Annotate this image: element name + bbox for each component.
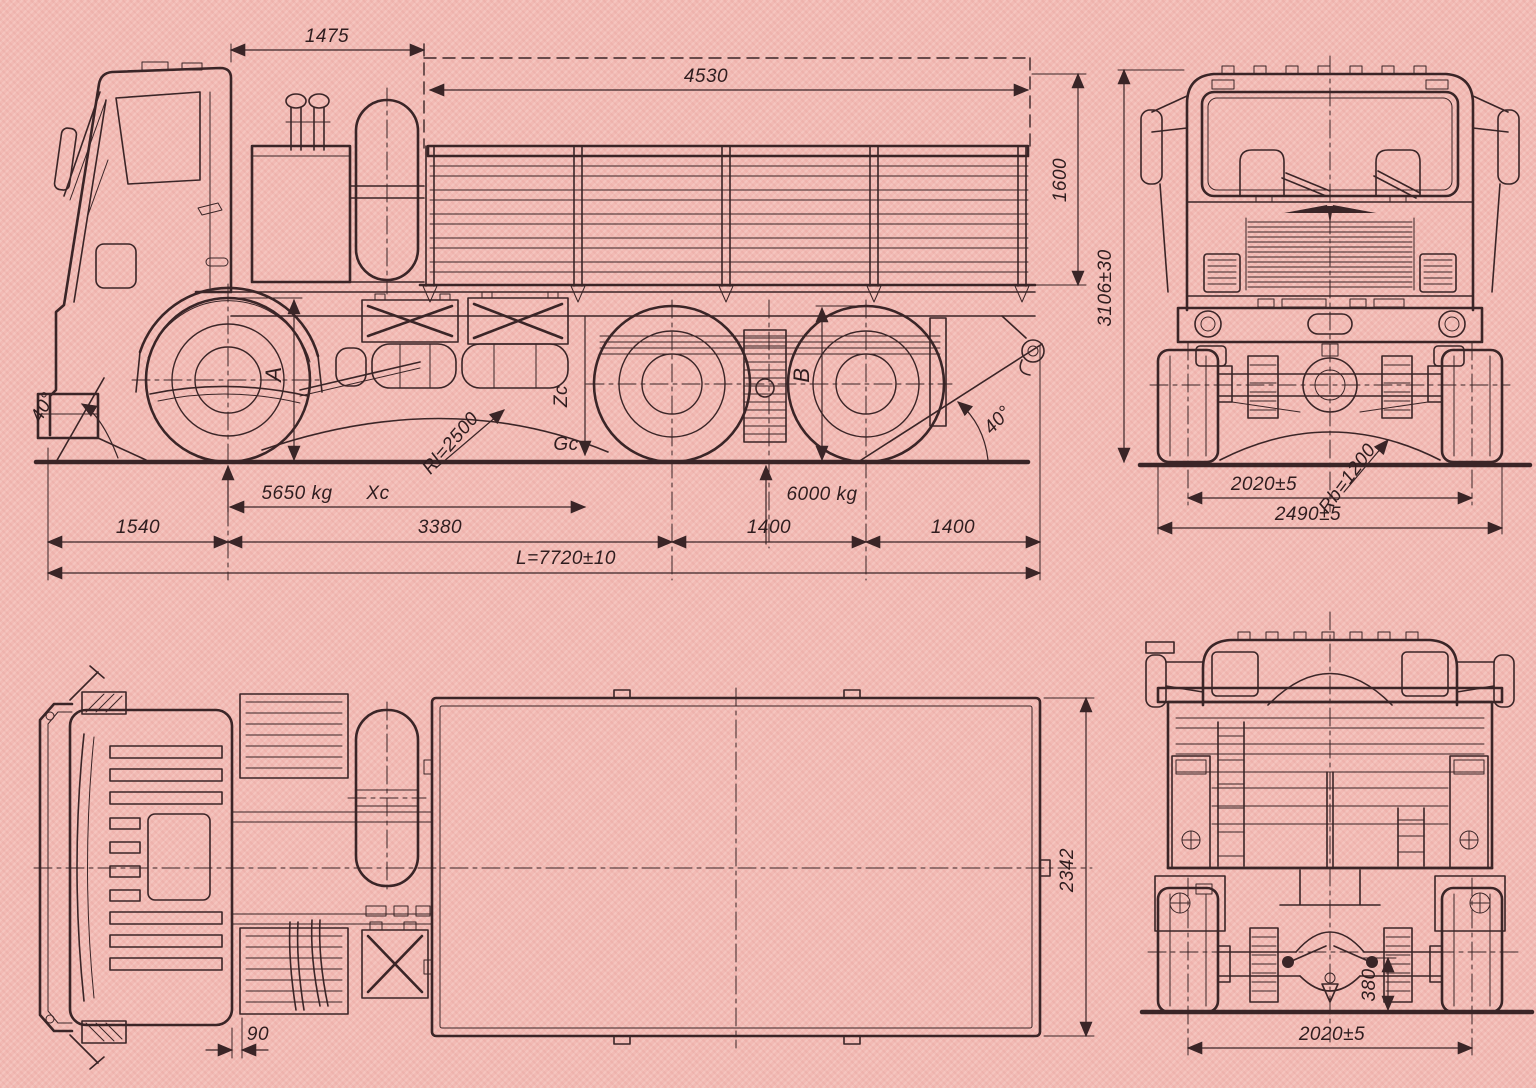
dim-rear-overhang: 1400: [931, 517, 975, 538]
marker-post-icon: [70, 666, 104, 700]
side-view-dimensions: 1475 4530 1600 A B 5650 kg Xc 6000 kg 15…: [48, 26, 1086, 573]
dim-cab-to-bed: 1475: [305, 26, 349, 47]
door-recess: [96, 244, 136, 288]
mirror-right-icon: [1498, 110, 1519, 184]
bogie-spring: [600, 336, 940, 354]
dim-overall-width: 2490±5: [1274, 504, 1341, 525]
dim-overall-height: 3106±30: [1095, 249, 1116, 326]
windshield-edge: [74, 100, 106, 302]
dim-rear-tire: B: [789, 367, 814, 382]
dim-overall-length: L=7720±10: [516, 548, 616, 569]
dim-front-tire: A: [261, 366, 286, 383]
dim-wheelbase: 3380: [418, 517, 462, 538]
mirror-left-icon: [1141, 110, 1162, 184]
cab-side: [38, 62, 322, 460]
dim-bed-length: 4530: [684, 66, 728, 87]
mirror-left-icon: [1146, 655, 1166, 707]
intake-snorkel: [1146, 642, 1174, 653]
fuel-tank-1: [372, 344, 456, 388]
spare-wheel-plan: [348, 702, 426, 894]
headlight-right-icon: [1439, 311, 1465, 337]
approach-angle: 40°: [27, 378, 118, 462]
blueprint-sheet: Gc Zc 40° 40° Rl=2500 1475 4530 1600 A B: [0, 0, 1536, 1088]
roof-hatch: [148, 814, 210, 900]
mirror-right-icon: [1494, 655, 1514, 707]
wiper-icon: [88, 160, 108, 215]
dim-cab-gap: 90: [247, 1024, 269, 1045]
engine-plan: [232, 694, 432, 1014]
departure-angle-label: 40°: [980, 402, 1016, 438]
rear-window-left: [1212, 652, 1258, 696]
exhaust-pipe-icon: [312, 920, 328, 1006]
engine-intake: [252, 94, 350, 282]
chassis-side: [48, 292, 1044, 580]
fuel-tank-2: [462, 344, 568, 388]
side-window: [116, 92, 200, 184]
spare-wheel-side: [350, 88, 424, 294]
front-wheel: [132, 284, 324, 580]
maz-badge-icon: [1284, 205, 1329, 213]
side-view: Gc Zc 40° 40° Rl=2500 1475 4530 1600 A B: [27, 26, 1086, 580]
steering-rod: [300, 362, 420, 390]
marker-post-icon: [70, 1035, 104, 1069]
dim-bed-height: 1600: [1050, 158, 1071, 202]
corner-post-left: [1172, 756, 1210, 868]
rear-view: 380 2020±5: [1142, 612, 1532, 1055]
dim-body-width: 2342: [1057, 848, 1078, 893]
tow-hook-icon: [1022, 340, 1044, 362]
dim-bogie-spacing: 1400: [747, 517, 791, 538]
mirror-icon: [54, 127, 77, 190]
top-view: 2342 90: [34, 666, 1094, 1069]
top-view-dimensions: 2342 90: [206, 698, 1094, 1058]
blueprint-drawing: Gc Zc 40° 40° Rl=2500 1475 4530 1600 A B: [0, 0, 1536, 1088]
seat-left: [1240, 150, 1284, 196]
dim-rear-track: 2020±5: [1298, 1024, 1365, 1045]
cg-height-label: Zc: [551, 385, 572, 408]
wiper-left-icon: [1282, 173, 1330, 196]
dim-front-overhang: 1540: [116, 517, 160, 538]
engine-box: [252, 146, 350, 282]
bogie-load-label: 6000 kg: [786, 484, 857, 505]
cg-distance-label: Xc: [365, 483, 389, 504]
dim-ground-clearance: 380: [1359, 968, 1380, 1001]
front-view: Rb=1200 3106±30 2020±5 2490±5: [1095, 56, 1530, 534]
corner-post-right: [1450, 756, 1488, 868]
toolbox-plan: [362, 906, 430, 998]
dim-track: 2020±5: [1230, 474, 1297, 495]
front-axle-load-label: 5650 kg: [261, 483, 332, 504]
exhaust-pipe-icon: [290, 922, 304, 1010]
cargo-bed-plan: [424, 690, 1050, 1044]
headlight-left-icon: [1195, 311, 1221, 337]
rear-window-right: [1402, 652, 1448, 696]
wiper-right-icon: [1374, 171, 1420, 198]
